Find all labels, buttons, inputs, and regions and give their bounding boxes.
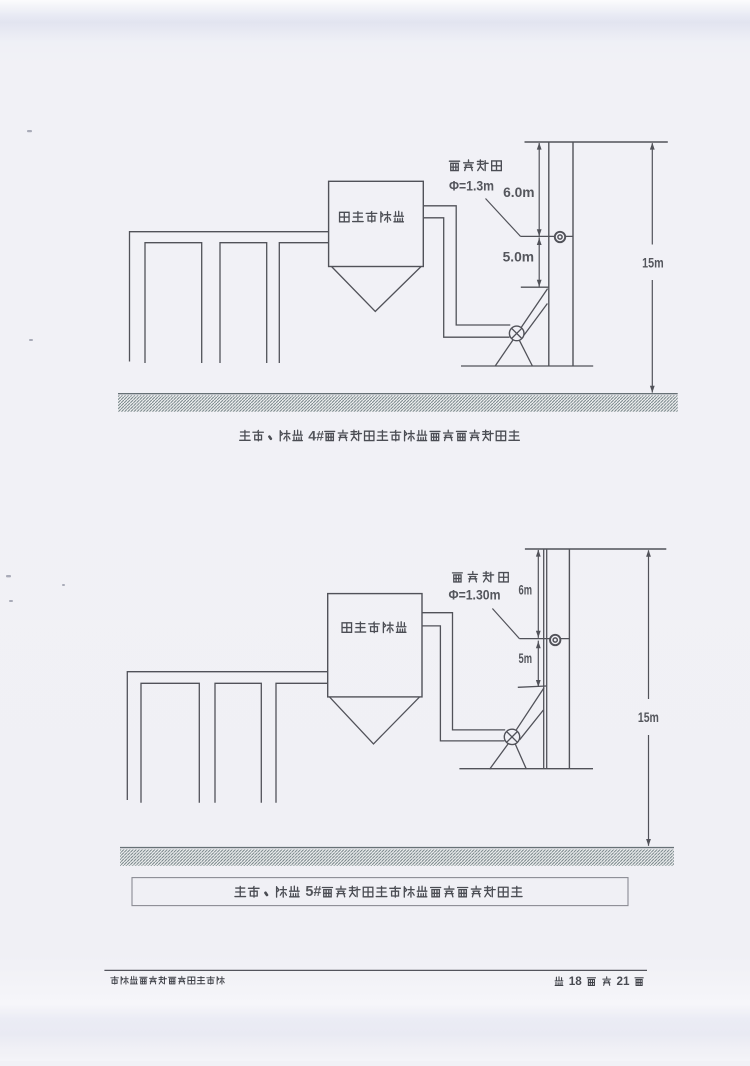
svg-text:Φ=1.30m: Φ=1.30m (449, 588, 501, 603)
svg-text:15m: 15m (642, 255, 664, 271)
svg-text:6m: 6m (519, 583, 533, 598)
svg-text:21: 21 (617, 975, 631, 988)
svg-text:5.0m: 5.0m (503, 250, 534, 265)
svg-text:15m: 15m (638, 710, 659, 726)
svg-text:4#: 4# (308, 428, 324, 444)
svg-text:Φ=1.3m: Φ=1.3m (449, 178, 494, 193)
svg-text:5#: 5# (305, 884, 321, 900)
svg-text:18: 18 (569, 975, 583, 988)
svg-text:5m: 5m (519, 651, 533, 666)
svg-text:6.0m: 6.0m (503, 185, 534, 200)
